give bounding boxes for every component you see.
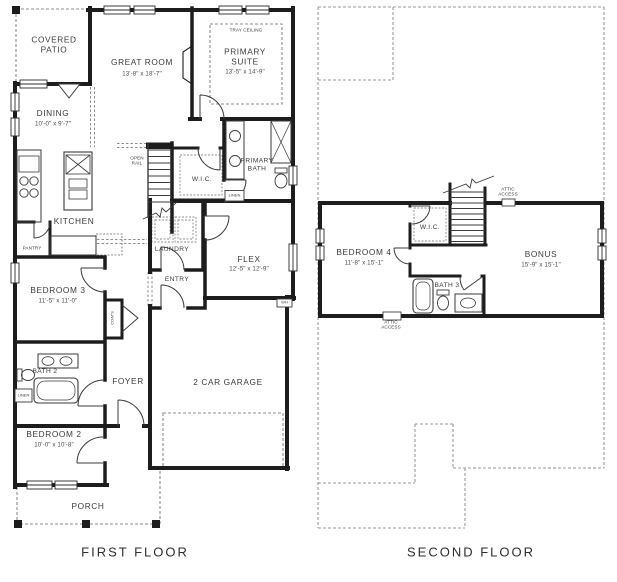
front-door — [118, 400, 144, 426]
attic-access-panel-top — [502, 199, 515, 206]
kitchen-island — [64, 152, 92, 210]
sf-roof-outline — [318, 7, 604, 528]
floorplan-linework — [0, 0, 617, 582]
room-label-laundry: LAUNDRY — [155, 246, 189, 254]
wall-oven — [19, 156, 39, 172]
open-rail-label: OPEN RAIL — [130, 156, 143, 167]
patio-slider-door — [58, 84, 80, 98]
room-dims-flex: 12'-5" x 12'-9" — [229, 265, 269, 272]
ff-porch-outline — [17, 470, 160, 524]
kitchen-sink-icon — [66, 155, 90, 174]
sink-icon — [60, 357, 72, 366]
bathtub-icon — [413, 279, 433, 313]
ff-garage-apron — [163, 413, 283, 467]
ff-kitchen-fixtures — [17, 150, 96, 255]
coats-label: COATS — [111, 311, 116, 324]
tray-ceiling-label: TRAY CEILING — [230, 27, 263, 32]
second-floor-title: SECOND FLOOR — [407, 546, 535, 561]
porch-column — [82, 520, 90, 528]
water-heater-label: WH — [281, 301, 288, 306]
room-label-garage: 2 CAR GARAGE — [193, 378, 262, 388]
window — [55, 481, 77, 489]
room-label-wic: W.I.C. — [192, 176, 212, 184]
shower-icon — [271, 121, 291, 163]
room-label-foyer: FOYER — [112, 377, 144, 387]
window — [20, 80, 47, 88]
sink-icon — [230, 156, 241, 167]
window — [598, 229, 606, 243]
room-dims-bonus: 15'-9" x 15'-1" — [521, 261, 561, 268]
bath2-door — [78, 380, 104, 406]
room-label-primary-suite: PRIMARY SUITE — [224, 47, 266, 66]
cooktop-icon — [20, 177, 38, 197]
attic-access-label-top: ATTIC ACCESS — [498, 187, 518, 198]
linen-label-bath2: LINEN — [18, 393, 30, 398]
ff-doors — [34, 84, 246, 463]
ff-fridge-outline — [96, 234, 122, 255]
coats-door — [122, 305, 138, 332]
sink-icon — [230, 131, 241, 142]
dishwasher-icon — [69, 179, 87, 199]
room-dims-primary-suite: 13'-5" x 14'-9" — [225, 68, 265, 75]
window — [289, 244, 297, 271]
patio-post — [12, 6, 20, 14]
room-label-primary-bath: PRIMARY BATH — [241, 157, 274, 172]
ff-stair-head-wall — [146, 143, 172, 150]
kitchen-counter-bottom — [50, 236, 96, 255]
bath3-door — [460, 277, 482, 290]
room-label-flex: FLEX — [237, 255, 260, 265]
window — [11, 118, 19, 136]
room-label-pantry: PANTRY — [23, 245, 42, 250]
room-label-bath3: BATH 3 — [435, 282, 460, 290]
room-label-porch: PORCH — [72, 502, 105, 512]
room-label-wic2: W.I.C. — [420, 224, 440, 232]
window — [134, 6, 155, 14]
flex-door — [205, 216, 229, 240]
window — [104, 6, 130, 14]
room-label-bedroom3: BEDROOM 3 — [30, 286, 85, 296]
sf-wic-door — [412, 206, 430, 224]
toilet-icon — [275, 168, 287, 188]
room-dims-dining: 10'-0" x 9'-7" — [35, 120, 71, 127]
room-label-bedroom4: BEDROOM 4 — [336, 248, 391, 258]
room-label-bonus: BONUS — [525, 250, 558, 260]
ff-wic-shelving — [180, 155, 222, 195]
linen-label-wic: LINEN — [229, 193, 241, 198]
room-label-dining: DINING — [37, 109, 70, 119]
window — [27, 481, 52, 489]
room-label-great-room: GREAT ROOM — [111, 58, 173, 68]
ff-washer-dryer — [152, 217, 196, 242]
room-dims-bedroom3: 11'-5" x 11'-0" — [39, 297, 78, 304]
bedroom4-door — [394, 248, 410, 264]
room-label-kitchen: KITCHEN — [54, 217, 95, 227]
window — [11, 93, 19, 111]
sink-icon — [42, 357, 54, 366]
floorplan-page: COVERED PATIO GREAT ROOM 13'-8" x 18'-7"… — [0, 0, 617, 582]
toilet-icon — [437, 290, 449, 310]
window — [316, 229, 324, 243]
window — [246, 6, 269, 14]
room-label-covered-patio: COVERED PATIO — [31, 35, 76, 54]
garage-entry-door — [161, 285, 184, 308]
bedroom2-door — [77, 437, 103, 463]
wic-door — [198, 148, 220, 170]
porch-column — [14, 520, 22, 528]
window — [289, 166, 297, 185]
ff-ceiling-break-lines — [91, 87, 153, 306]
room-label-bedroom2: BEDROOM 2 — [26, 430, 81, 440]
first-floor-title: FIRST FLOOR — [81, 546, 189, 561]
bathtub-icon — [34, 378, 78, 403]
bath2-vanity — [38, 354, 78, 368]
kitchen-counter-left — [17, 150, 41, 222]
sink-counter — [455, 294, 482, 312]
window — [316, 246, 324, 260]
room-dims-bedroom4: 11'-8" x 15'-1" — [344, 259, 383, 266]
window — [219, 6, 242, 14]
room-dims-bedroom2: 10'-0" x 10'-8" — [34, 441, 74, 448]
pantry-door — [34, 222, 50, 238]
room-label-entry: ENTRY — [165, 276, 189, 284]
primary-suite-door — [200, 95, 224, 119]
window — [598, 246, 606, 260]
porch-column — [152, 520, 160, 528]
room-label-bath2: BATH 2 — [33, 368, 58, 376]
sink-icon — [461, 298, 476, 308]
window — [11, 263, 19, 283]
attic-access-label-bottom: ATTIC ACCESS — [381, 320, 401, 331]
room-dims-great-room: 13'-8" x 18'-7" — [122, 70, 162, 77]
